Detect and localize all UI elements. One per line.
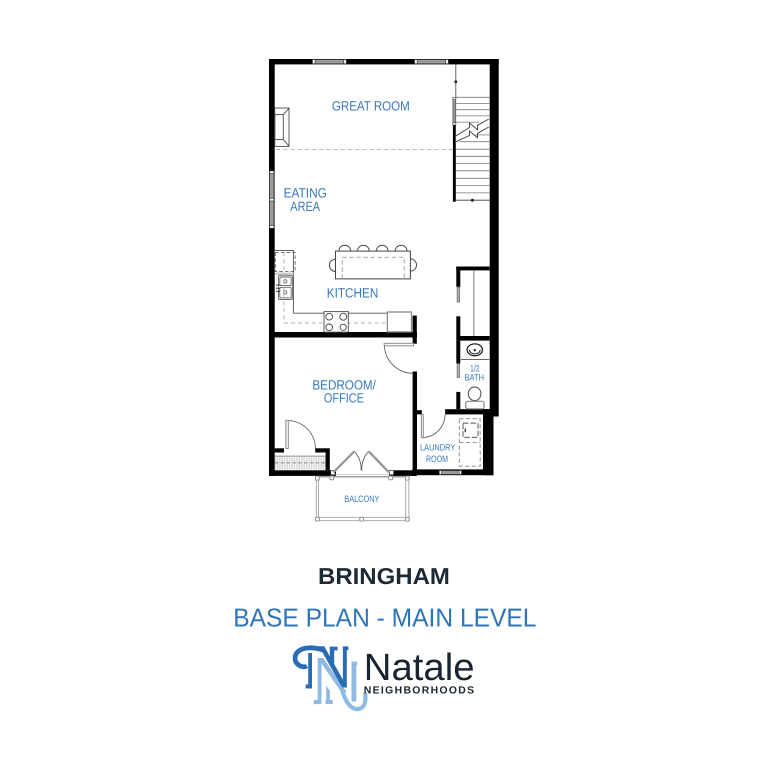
svg-text:LAUNDRY: LAUNDRY (420, 443, 455, 453)
svg-text:BALCONY: BALCONY (344, 494, 379, 504)
svg-text:ROOM: ROOM (426, 454, 448, 464)
svg-text:NEIGHBORHOODS: NEIGHBORHOODS (364, 685, 476, 696)
svg-text:BASE PLAN - MAIN LEVEL: BASE PLAN - MAIN LEVEL (233, 602, 536, 632)
svg-text:AREA: AREA (290, 199, 320, 214)
svg-text:BRINGHAM: BRINGHAM (318, 563, 450, 589)
svg-text:KITCHEN: KITCHEN (327, 285, 379, 300)
svg-text:BATH: BATH (465, 372, 485, 382)
svg-text:OFFICE: OFFICE (324, 391, 364, 406)
svg-text:GREAT ROOM: GREAT ROOM (332, 98, 410, 113)
svg-text:Natale: Natale (364, 647, 475, 689)
